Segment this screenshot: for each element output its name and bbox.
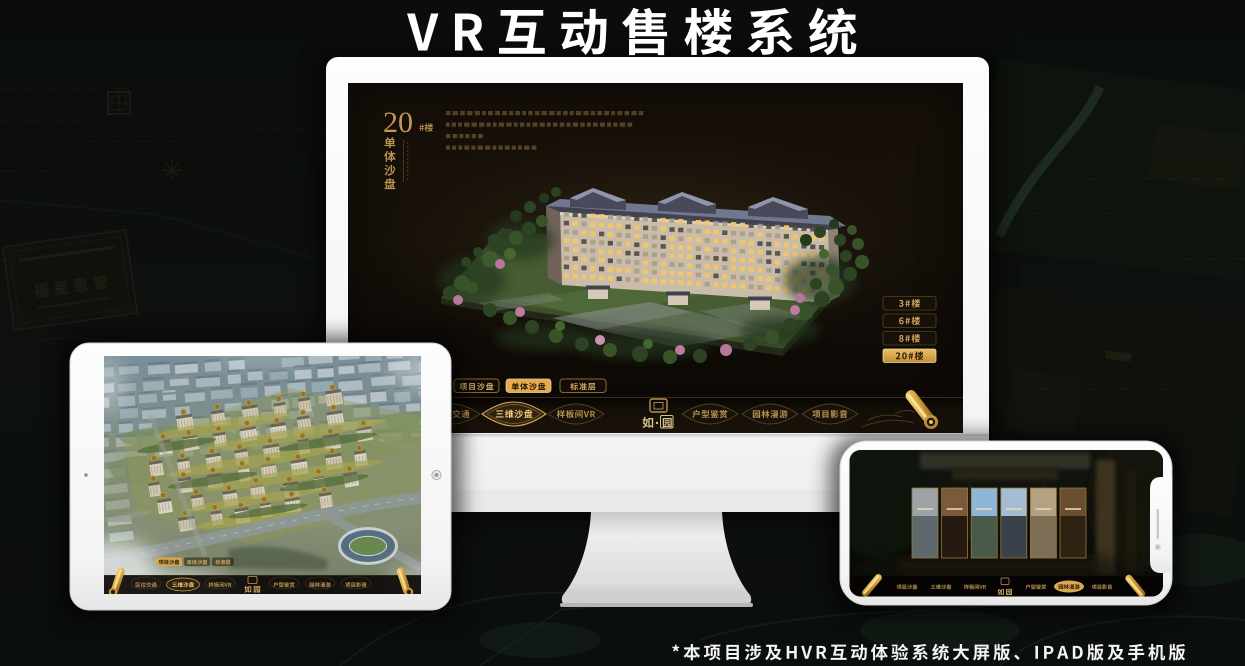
svg-text:20: 20: [383, 106, 413, 139]
